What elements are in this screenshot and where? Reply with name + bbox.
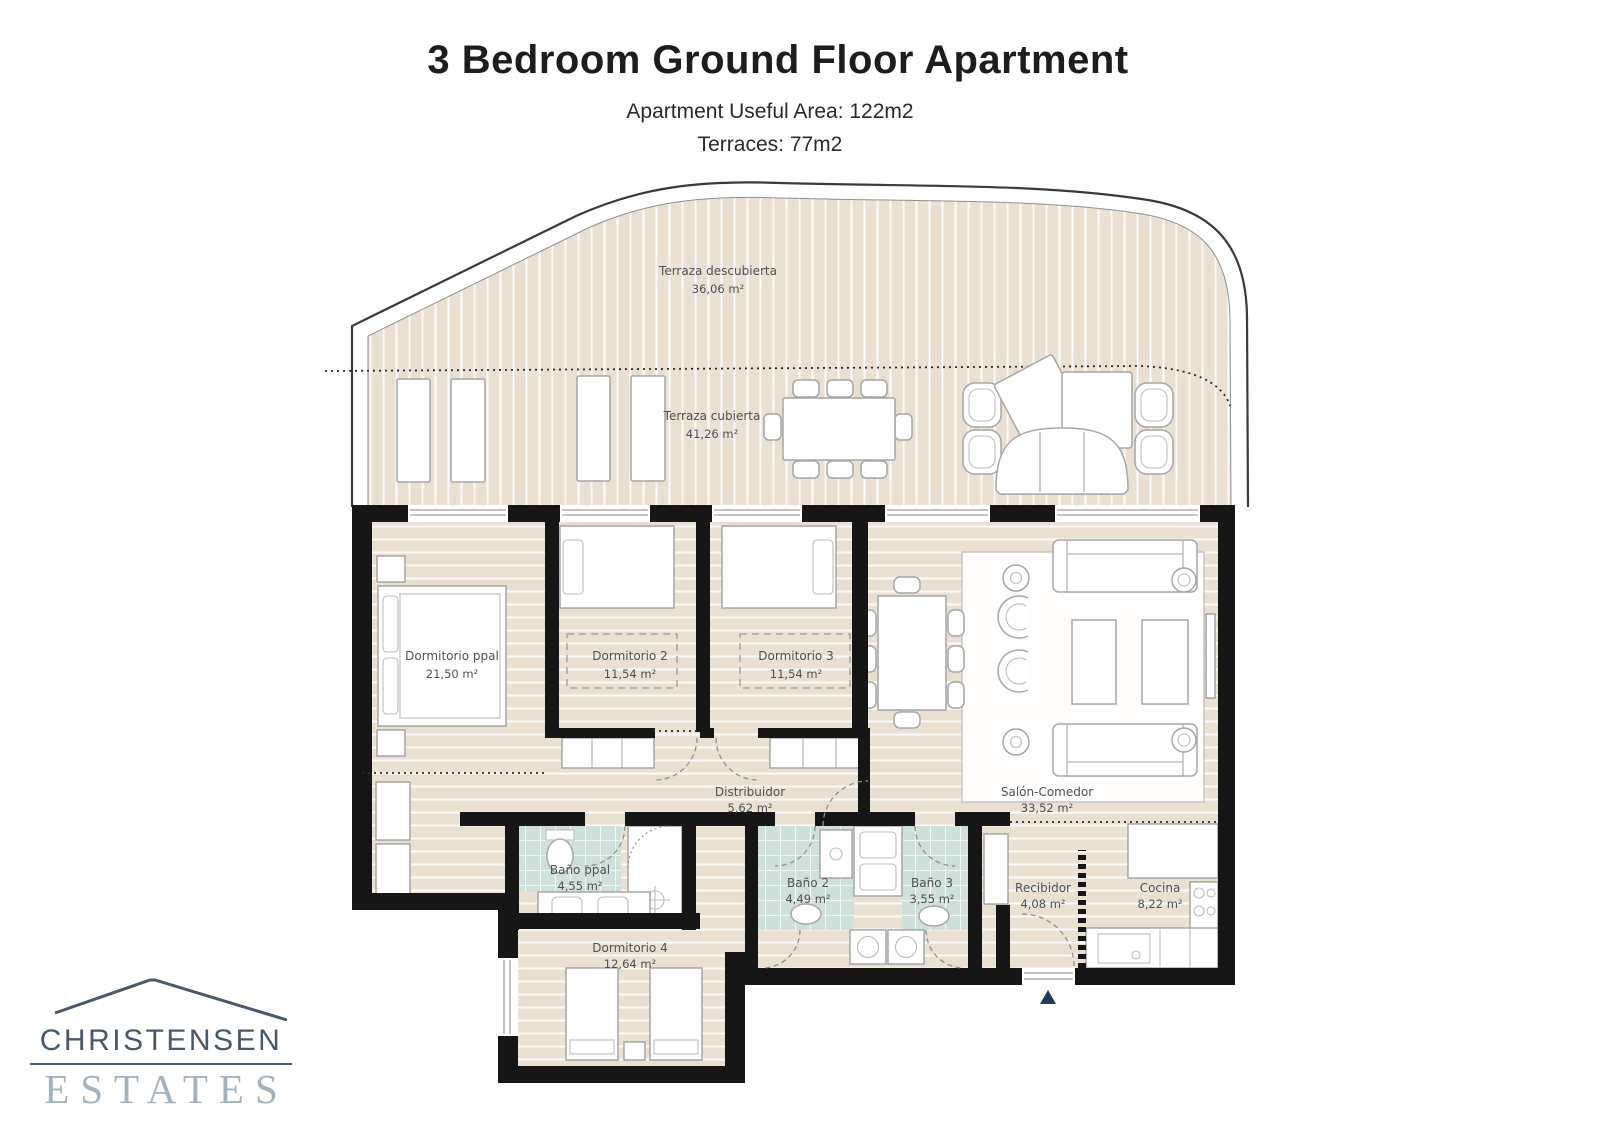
hall-closet bbox=[376, 782, 410, 840]
pillow bbox=[654, 1040, 698, 1054]
dining-chair bbox=[948, 682, 964, 708]
entrance-arrow-icon bbox=[1040, 990, 1056, 1004]
room-label-name: Cocina bbox=[1140, 881, 1181, 895]
room-label-area: 8,22 m² bbox=[1137, 897, 1182, 911]
window bbox=[498, 958, 518, 1036]
logo-type: ESTATES bbox=[28, 1069, 294, 1110]
room-label-name: Recibidor bbox=[1015, 881, 1071, 895]
patio-curved-sofa bbox=[996, 428, 1128, 494]
coffee-table bbox=[1072, 620, 1116, 704]
sun-lounger bbox=[577, 376, 610, 481]
washer-door-icon bbox=[858, 937, 879, 958]
window bbox=[1055, 505, 1200, 522]
kitchen-sink bbox=[1098, 934, 1150, 963]
room-label-area: 11,54 m² bbox=[770, 667, 822, 681]
room-label-area: 33,52 m² bbox=[1021, 801, 1073, 815]
room-label-name: Dormitorio 4 bbox=[592, 941, 667, 955]
sun-lounger bbox=[631, 376, 665, 481]
side-table bbox=[1011, 737, 1022, 748]
wardrobe bbox=[770, 738, 868, 768]
room-label-name: Baño ppal bbox=[550, 863, 610, 877]
burner-icon bbox=[1194, 906, 1204, 916]
nightstand bbox=[377, 556, 405, 582]
kitchen-island bbox=[1128, 824, 1218, 878]
plant bbox=[1178, 574, 1190, 586]
dining-chair bbox=[948, 610, 964, 636]
burner-icon bbox=[1207, 889, 1215, 897]
logo-roof-icon bbox=[28, 975, 294, 1021]
room-label-area: 12,64 m² bbox=[604, 957, 656, 971]
room-label-area: 3,55 m² bbox=[909, 892, 954, 906]
apartment: Dormitorio ppal 21,50 m² Dormitorio 2 11… bbox=[352, 505, 1235, 1083]
dining-chair bbox=[894, 577, 920, 593]
dining-table bbox=[878, 596, 946, 710]
floor-plan-drawing: Terraza descubierta 36,06 m² Terraza cub… bbox=[0, 0, 1600, 1131]
entrance-door-gap bbox=[1022, 968, 1075, 985]
patio-stool bbox=[963, 430, 1001, 474]
patio-chair bbox=[861, 380, 887, 397]
pillow bbox=[813, 540, 833, 594]
toilet bbox=[919, 906, 949, 926]
patio-chair bbox=[764, 414, 781, 440]
patio-chair bbox=[895, 414, 912, 440]
patio-chair bbox=[793, 380, 819, 397]
nightstand bbox=[377, 730, 405, 756]
dining-chair bbox=[894, 712, 920, 728]
company-logo: CHRISTENSEN ESTATES bbox=[28, 975, 294, 1110]
dining-chair bbox=[948, 646, 964, 672]
room-label-area: 36,06 m² bbox=[692, 282, 744, 296]
sliding-door-hatch bbox=[1078, 850, 1086, 978]
patio-chair bbox=[827, 380, 853, 397]
sun-lounger bbox=[397, 379, 430, 482]
hall-closet bbox=[984, 834, 1008, 904]
burner-icon bbox=[1194, 888, 1204, 898]
room-label-area: 4,55 m² bbox=[557, 879, 602, 893]
room-label-area: 4,08 m² bbox=[1020, 897, 1065, 911]
patio-chair bbox=[827, 461, 853, 478]
stove bbox=[1190, 882, 1218, 930]
patio-stool bbox=[1135, 430, 1173, 474]
room-label-area: 21,50 m² bbox=[426, 667, 478, 681]
side-table bbox=[1011, 573, 1022, 584]
room-label-area: 4,49 m² bbox=[785, 892, 830, 906]
room-label-name: Dormitorio 2 bbox=[592, 649, 667, 663]
room-label-name: Baño 2 bbox=[787, 876, 829, 890]
window bbox=[408, 505, 508, 522]
wardrobe bbox=[562, 738, 654, 768]
patio-chair bbox=[793, 461, 819, 478]
burner-icon bbox=[1207, 907, 1215, 915]
pillow bbox=[383, 596, 398, 652]
room-label-name: Salón-Comedor bbox=[1001, 785, 1093, 799]
pillow bbox=[563, 540, 583, 594]
coffee-table bbox=[1142, 620, 1188, 704]
terrace: Terraza descubierta 36,06 m² Terraza cub… bbox=[325, 182, 1248, 507]
floorplan-page: 3 Bedroom Ground Floor Apartment Apartme… bbox=[0, 0, 1600, 1131]
patio-stool bbox=[1135, 383, 1173, 427]
window bbox=[712, 505, 802, 522]
dryer-door-icon bbox=[896, 937, 917, 958]
nightstand bbox=[624, 1042, 645, 1060]
room-label-name: Baño 3 bbox=[911, 876, 953, 890]
room-label-area: 11,54 m² bbox=[604, 667, 656, 681]
logo-name: CHRISTENSEN bbox=[28, 1026, 294, 1056]
tv-console bbox=[1206, 614, 1215, 698]
hall-closet bbox=[376, 844, 410, 900]
plant bbox=[1178, 734, 1190, 746]
pillow bbox=[383, 658, 398, 714]
room-label-area: 41,26 m² bbox=[686, 427, 738, 441]
room-label-name: Dormitorio 3 bbox=[758, 649, 833, 663]
pillow bbox=[570, 1040, 614, 1054]
drain-icon bbox=[1132, 951, 1140, 959]
sink bbox=[860, 864, 896, 890]
patio-chair bbox=[861, 461, 887, 478]
room-label-name: Dormitorio ppal bbox=[405, 649, 499, 663]
sun-lounger bbox=[451, 379, 485, 482]
room-label-name: Terraza descubierta bbox=[658, 264, 777, 278]
window bbox=[885, 505, 990, 522]
sink bbox=[860, 832, 896, 858]
window bbox=[560, 505, 650, 522]
shower-drain-icon bbox=[830, 848, 842, 860]
room-label-name: Terraza cubierta bbox=[663, 409, 761, 423]
room-label-area: 5,62 m² bbox=[727, 801, 772, 815]
logo-divider bbox=[30, 1063, 292, 1065]
room-label-name: Distribuidor bbox=[715, 785, 785, 799]
toilet bbox=[791, 904, 821, 924]
patio-table bbox=[783, 398, 895, 460]
